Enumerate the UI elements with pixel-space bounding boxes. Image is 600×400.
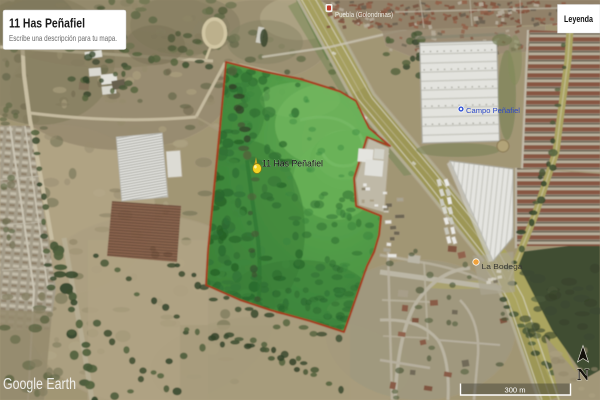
svg-text:N: N: [577, 365, 590, 384]
svg-text:Campo Peñafiel: Campo Peñafiel: [466, 108, 520, 115]
svg-text:Puebla (Golondrinas): Puebla (Golondrinas): [335, 10, 393, 19]
svg-text:11 Has Peñafiel: 11 Has Peñafiel: [262, 159, 323, 169]
svg-text:La Bodega: La Bodega: [482, 264, 523, 271]
svg-text:Google Earth: Google Earth: [3, 376, 76, 393]
svg-text:11 Has Peñafiel: 11 Has Peñafiel: [9, 16, 85, 31]
svg-text:300 m: 300 m: [505, 385, 526, 394]
svg-text:Leyenda: Leyenda: [564, 14, 594, 25]
svg-text:Escribe una descripción para t: Escribe una descripción para tu mapa.: [9, 33, 117, 43]
